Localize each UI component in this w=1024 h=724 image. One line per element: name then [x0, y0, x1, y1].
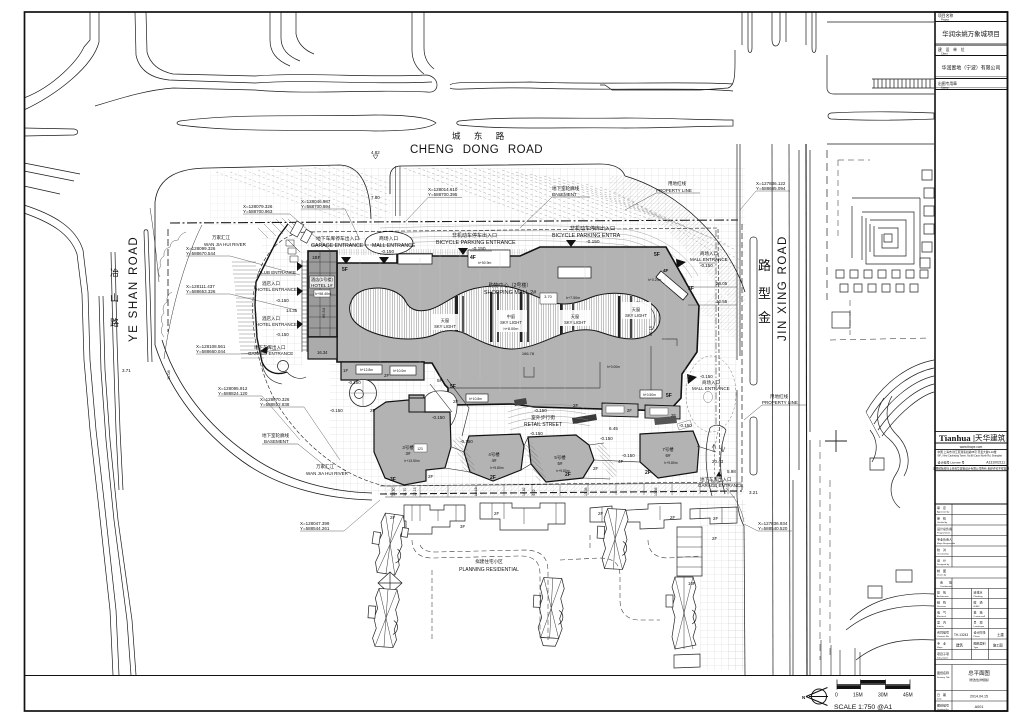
svg-text:2F: 2F — [565, 472, 571, 478]
svg-text:Landscape: Landscape — [974, 626, 985, 628]
svg-text:Structure: Structure — [937, 605, 947, 608]
svg-text:1BF: 1BF — [312, 255, 321, 260]
svg-text:Type: Type — [974, 647, 980, 649]
svg-text:制 图: 制 图 — [937, 568, 946, 573]
svg-text:20.43: 20.43 — [712, 459, 724, 464]
svg-text:Drawn by: Drawn by — [937, 574, 947, 577]
svg-text:地下室轮廓线: 地下室轮廓线 — [552, 185, 579, 192]
svg-text:-0.150: -0.150 — [530, 431, 543, 436]
svg-text:BICYCLE PARKING ENTRA: BICYCLE PARKING ENTRA — [552, 233, 621, 239]
svg-text:Y=588812.838: Y=588812.838 — [260, 402, 290, 407]
svg-text:建 设 单 位: 建 设 单 位 — [938, 47, 965, 52]
svg-text:3.71: 3.71 — [122, 368, 131, 373]
svg-text:-0.150: -0.150 — [586, 239, 600, 245]
svg-text:45M: 45M — [903, 693, 913, 699]
svg-text:13.13: 13.13 — [474, 487, 478, 496]
svg-text:Y=588660.044: Y=588660.044 — [196, 349, 226, 354]
svg-text:Y=588685.094: Y=588685.094 — [756, 186, 786, 191]
svg-text:-0.150: -0.150 — [534, 408, 547, 413]
svg-text:3F: 3F — [460, 524, 465, 529]
svg-text:4.82: 4.82 — [371, 150, 380, 155]
svg-text:项目子项: 项目子项 — [937, 651, 949, 656]
svg-text:3号楼: 3号楼 — [402, 444, 414, 451]
svg-text:总平面图: 总平面图 — [968, 669, 990, 677]
svg-text:-0.150: -0.150 — [700, 374, 713, 379]
svg-text:SHOPPING MALL 2#: SHOPPING MALL 2# — [484, 290, 537, 296]
svg-text:MALL ENTRANCE: MALL ENTRANCE — [690, 257, 728, 262]
svg-text:给排水: 给排水 — [974, 590, 983, 595]
svg-text:Y=588700.963: Y=588700.963 — [243, 209, 273, 214]
svg-text:www.thape.com: www.thape.com — [960, 445, 983, 449]
svg-text:建筑: 建筑 — [956, 643, 963, 648]
svg-text:TH-13243: TH-13243 — [954, 633, 968, 637]
svg-text:2F: 2F — [390, 515, 395, 520]
svg-text:1F: 1F — [343, 368, 348, 373]
svg-text:拟建住宅小区: 拟建住宅小区 — [475, 558, 503, 565]
svg-text:123: 123 — [417, 447, 423, 451]
svg-text:设 计: 设 计 — [937, 558, 946, 563]
svg-text:结 构: 结 构 — [937, 600, 946, 605]
svg-text:h+10.0m: h+10.0m — [393, 369, 406, 373]
svg-text:15M: 15M — [853, 693, 863, 699]
svg-text:Coordination: Coordination — [940, 585, 953, 588]
svg-text:商场入口: 商场入口 — [702, 379, 720, 386]
svg-text:N: N — [802, 695, 805, 700]
svg-text:5F: 5F — [666, 393, 672, 399]
svg-text:0: 0 — [835, 693, 838, 699]
svg-text:5F: 5F — [342, 267, 348, 273]
svg-text:Electrical: Electrical — [937, 615, 946, 618]
svg-text:审 定: 审 定 — [937, 505, 946, 510]
svg-text:土建: 土建 — [997, 632, 1004, 637]
svg-text:11.70: 11.70 — [403, 488, 407, 496]
svg-text:2F: 2F — [593, 466, 599, 471]
svg-text:天窗: 天窗 — [441, 317, 449, 324]
svg-text:h+8.00m: h+8.00m — [504, 327, 519, 331]
svg-text:Approved by: Approved by — [937, 511, 950, 514]
svg-text:SKY LIGHT: SKY LIGHT — [500, 320, 522, 325]
svg-text:地下车库出入口: 地下车库出入口 — [700, 476, 732, 483]
svg-text:-0.150: -0.150 — [700, 263, 713, 268]
svg-text:2F: 2F — [384, 373, 389, 378]
svg-text:Project: Project — [941, 18, 949, 22]
svg-text:4F: 4F — [663, 268, 669, 273]
svg-text:Contract No.: Contract No. — [937, 635, 950, 638]
svg-text:Y=588653.326: Y=588653.326 — [186, 289, 216, 294]
svg-text:h+10.8m: h+10.8m — [469, 397, 482, 401]
svg-text:JIN XING ROAD: JIN XING ROAD — [777, 235, 789, 341]
svg-text:15.90: 15.90 — [392, 487, 396, 496]
svg-text:天窗: 天窗 — [632, 306, 640, 313]
svg-text:Designed by: Designed by — [937, 564, 950, 566]
svg-text:h+12.8m: h+12.8m — [360, 368, 373, 372]
svg-text:-0.150: -0.150 — [276, 332, 289, 337]
svg-text:GARAGE ENTRANCE: GARAGE ENTRANCE — [248, 351, 293, 356]
svg-text:h+0.29m: h+0.29m — [648, 278, 661, 282]
svg-text:Tianhua: Tianhua — [939, 433, 971, 443]
svg-text:Architecture: Architecture — [937, 595, 949, 598]
svg-text:金: 金 — [758, 310, 771, 325]
svg-text:Drawing Title: Drawing Title — [937, 676, 950, 679]
svg-text:酒店入口: 酒店入口 — [262, 315, 280, 322]
svg-text:设计编号 License 号: 设计编号 License 号 — [938, 460, 965, 465]
svg-text:12.55: 12.55 — [716, 299, 728, 304]
svg-text:h+0.00m: h+0.00m — [607, 365, 620, 369]
svg-text:地下室轮廓线: 地下室轮廓线 — [262, 432, 289, 439]
svg-text:BASEMENT: BASEMENT — [264, 439, 289, 444]
svg-text:暖 通: 暖 通 — [974, 600, 983, 605]
svg-text:Date: Date — [937, 697, 942, 700]
svg-text:室 内: 室 内 — [937, 620, 946, 625]
svg-text:Stamp: Stamp — [941, 86, 949, 90]
svg-text:Y=588700.395: Y=588700.395 — [428, 192, 458, 197]
svg-text:10.82: 10.82 — [522, 487, 526, 496]
svg-text:h+13.50m: h+13.50m — [404, 459, 419, 463]
svg-text:166.78: 166.78 — [522, 351, 535, 356]
svg-text:7.80: 7.80 — [371, 195, 380, 200]
svg-text:-0.150: -0.150 — [432, 415, 445, 420]
svg-text:4F: 4F — [470, 255, 476, 261]
svg-text:2F: 2F — [573, 403, 579, 408]
svg-text:幕 墙: 幕 墙 — [974, 610, 983, 615]
svg-text:5F: 5F — [450, 384, 456, 390]
svg-text:室外步行街: 室外步行街 — [531, 414, 555, 421]
svg-text:（修改性详规版）: （修改性详规版） — [967, 677, 991, 682]
svg-text:建 筑: 建 筑 — [937, 590, 946, 595]
svg-text:10F: 10F — [688, 581, 696, 586]
svg-text:非机动车停车出入口: 非机动车停车出入口 — [452, 232, 497, 239]
svg-text:2F: 2F — [671, 413, 676, 418]
svg-text:华润置地（宁波）有限公司: 华润置地（宁波）有限公司 — [942, 65, 1001, 72]
svg-text:2F: 2F — [670, 515, 675, 520]
svg-text:5.98: 5.98 — [727, 469, 736, 474]
svg-text:型: 型 — [758, 286, 771, 301]
svg-text:设计总负责: 设计总负责 — [937, 526, 952, 531]
svg-text:PROPERTY LINE: PROPERTY LINE — [762, 400, 798, 405]
svg-text:SKY LIGHT: SKY LIGHT — [434, 324, 456, 329]
svg-text:HOTEL 1#: HOTEL 1# — [311, 283, 333, 288]
svg-text:6#: 6# — [666, 453, 671, 458]
svg-text:Y=588540.520: Y=588540.520 — [758, 526, 788, 531]
svg-text:本图纸版权归上海天华建筑设计有限公司所有 未经许可不得复制: 本图纸版权归上海天华建筑设计有限公司所有 未经许可不得复制 — [933, 466, 1009, 470]
svg-text:85.15: 85.15 — [648, 325, 653, 336]
svg-text:2F: 2F — [645, 470, 651, 476]
svg-text:h+0.50m: h+0.50m — [643, 393, 656, 397]
svg-text:用地红线: 用地红线 — [668, 180, 686, 187]
svg-text:PLANNING RESIDENTIAL: PLANNING RESIDENTIAL — [459, 567, 519, 573]
svg-text:Y=588544.261: Y=588544.261 — [300, 526, 330, 531]
svg-text:30M: 30M — [878, 693, 888, 699]
svg-text:2F: 2F — [490, 475, 496, 481]
svg-text:h+7.50m: h+7.50m — [566, 296, 580, 300]
svg-text:WAN JIA HUI RIVER: WAN JIA HUI RIVER — [306, 471, 349, 476]
svg-text:2014.04.15: 2014.04.15 — [970, 695, 988, 699]
svg-text:3.21: 3.21 — [749, 490, 758, 495]
svg-text:2F: 2F — [428, 474, 434, 479]
svg-text:用地红线: 用地红线 — [770, 393, 788, 400]
svg-text:地下车库出入口: 地下车库出入口 — [254, 344, 286, 351]
svg-text:路: 路 — [758, 258, 771, 273]
svg-text:Curtain wall: Curtain wall — [974, 615, 986, 618]
svg-text:GARAGE ENTRANCE: GARAGE ENTRANCE — [698, 483, 743, 488]
svg-text:中庭: 中庭 — [507, 313, 516, 320]
svg-text:中国 上海市 徐汇区漕溪北路88号 圣爱大厦9-10楼: 中国 上海市 徐汇区漕溪北路88号 圣爱大厦9-10楼 — [938, 450, 997, 454]
svg-text:酒店入口: 酒店入口 — [262, 280, 280, 287]
svg-text:图纸类别: 图纸类别 — [974, 641, 986, 646]
svg-text:华润余姚万象城项目: 华润余姚万象城项目 — [942, 29, 1000, 38]
svg-text:会 签: 会 签 — [940, 580, 952, 585]
svg-text:2F: 2F — [598, 511, 603, 516]
svg-text:Sub-project: Sub-project — [937, 656, 949, 659]
svg-text:GARAGE ENTRANCE: GARAGE ENTRANCE — [311, 243, 364, 249]
svg-text:6.45: 6.45 — [609, 426, 618, 431]
svg-text:Plumbing: Plumbing — [974, 596, 984, 598]
svg-text:5F: 5F — [437, 378, 443, 383]
svg-text:电 气: 电 气 — [937, 610, 946, 615]
svg-text:5#: 5# — [558, 461, 563, 466]
svg-text:2F: 2F — [627, 408, 632, 413]
svg-text:非机动车停库出入口: 非机动车停库出入口 — [570, 225, 615, 232]
svg-text:h+50.9m: h+50.9m — [478, 261, 491, 265]
svg-text:Y=588700.994: Y=588700.994 — [301, 204, 331, 209]
svg-text:天窗: 天窗 — [571, 313, 579, 320]
svg-text:路: 路 — [110, 317, 119, 328]
svg-text:专业负责人: 专业负责人 — [937, 537, 952, 542]
svg-text:12.13: 12.13 — [413, 487, 417, 496]
svg-text:YE SHAN ROAD: YE SHAN ROAD — [128, 236, 140, 342]
svg-text:审 核: 审 核 — [937, 516, 946, 521]
svg-text:h+98.40m: h+98.40m — [315, 292, 331, 296]
svg-text:h+9.80m: h+9.80m — [490, 466, 503, 470]
svg-text:专 业: 专 业 — [937, 641, 946, 646]
svg-text:3.70: 3.70 — [544, 295, 551, 299]
svg-text:2F: 2F — [370, 408, 376, 413]
svg-text:A131002111: A131002111 — [986, 461, 1005, 465]
svg-text:Phase: Phase — [974, 636, 981, 638]
svg-text:-0.150: -0.150 — [622, 453, 635, 458]
svg-text:4#: 4# — [492, 458, 497, 463]
svg-text:景 观: 景 观 — [974, 620, 983, 625]
svg-text:-0.150: -0.150 — [381, 249, 394, 254]
svg-text:Y=588824.120: Y=588824.120 — [218, 391, 248, 396]
svg-text:Major Responsible: Major Responsible — [937, 542, 956, 545]
svg-text:h+9.80m: h+9.80m — [664, 461, 677, 465]
svg-text:-0.150: -0.150 — [276, 298, 289, 303]
svg-text:11.08: 11.08 — [166, 370, 171, 380]
svg-text:SKY LIGHT: SKY LIGHT — [564, 320, 586, 325]
svg-text:商场入口: 商场入口 — [700, 250, 718, 257]
svg-text:Checked by: Checked by — [937, 554, 949, 556]
svg-text:日 期: 日 期 — [937, 692, 946, 697]
svg-text:-0.150: -0.150 — [600, 436, 613, 441]
svg-text:-0.150: -0.150 — [679, 423, 692, 428]
svg-text:15.36: 15.36 — [584, 487, 588, 496]
svg-text:3#: 3# — [406, 451, 411, 456]
svg-text:HVAC: HVAC — [974, 605, 980, 608]
svg-text:酒店(1号楼): 酒店(1号楼) — [311, 276, 333, 283]
svg-text:BASEMENT: BASEMENT — [552, 192, 577, 197]
svg-text:Y=588670.544: Y=588670.544 — [186, 251, 216, 256]
svg-text:万家汇江: 万家汇江 — [316, 463, 334, 470]
svg-text:2F: 2F — [494, 511, 499, 516]
svg-text:Major: Major — [937, 646, 943, 649]
svg-text:2F: 2F — [453, 399, 459, 404]
svg-text:4号楼: 4号楼 — [488, 451, 500, 458]
svg-text:|天华建筑: |天华建筑 — [973, 433, 1006, 443]
svg-text:5F: 5F — [654, 252, 660, 258]
svg-text:BICYCLE PARKING ENTRANCE: BICYCLE PARKING ENTRANCE — [436, 240, 516, 246]
svg-text:3F: 3F — [390, 477, 396, 483]
svg-text:9/F., New Caohejing Tower, No.: 9/F., New Caohejing Tower, No.88 Caoxi N… — [938, 455, 1003, 458]
svg-text:PROPERTY LINE: PROPERTY LINE — [656, 188, 692, 193]
svg-text:地下车库停车出入口: 地下车库停车出入口 — [316, 235, 359, 242]
svg-text:-0.150: -0.150 — [460, 439, 473, 444]
svg-text:-0.150: -0.150 — [330, 408, 343, 413]
svg-text:冶: 冶 — [110, 267, 119, 278]
svg-text:13.36: 13.36 — [654, 487, 658, 496]
svg-text:购物中心（2号楼）: 购物中心（2号楼） — [489, 282, 532, 289]
svg-text:校 对: 校 对 — [937, 547, 946, 552]
svg-text:万家汇江: 万家汇江 — [212, 234, 230, 241]
svg-text:城 东 路: 城 东 路 — [452, 131, 510, 141]
svg-text:HOTEL ENTRANCE: HOTEL ENTRANCE — [256, 322, 297, 327]
svg-text:2F: 2F — [713, 516, 718, 521]
svg-text:Verified by: Verified by — [937, 521, 948, 524]
svg-text:29.05: 29.05 — [716, 281, 728, 286]
svg-text:图纸名称: 图纸名称 — [937, 670, 949, 675]
svg-text:2F: 2F — [712, 536, 717, 541]
svg-text:65.54: 65.54 — [321, 307, 326, 318]
svg-text:合同编号: 合同编号 — [937, 630, 949, 635]
svg-text:SKY LIGHT: SKY LIGHT — [625, 313, 647, 318]
svg-text:HOTEL ENTRANCE: HOTEL ENTRANCE — [256, 287, 297, 292]
svg-text:施工图: 施工图 — [993, 643, 1003, 648]
svg-text:设计阶段: 设计阶段 — [974, 630, 986, 635]
svg-text:4F: 4F — [618, 459, 624, 464]
svg-text:5号楼: 5号楼 — [554, 454, 566, 461]
svg-text:A001: A001 — [975, 705, 984, 709]
svg-text:RETAIL STREET: RETAIL STREET — [524, 422, 562, 428]
svg-text:Programmed: Programmed — [937, 532, 950, 535]
svg-text:Interior: Interior — [937, 625, 944, 628]
svg-text:图纸编号: 图纸编号 — [937, 703, 949, 708]
svg-text:7号楼: 7号楼 — [662, 446, 674, 453]
svg-text:-0.150: -0.150 — [348, 380, 361, 385]
svg-text:16.34: 16.34 — [317, 350, 328, 355]
svg-text:CHENG DONG ROAD: CHENG DONG ROAD — [410, 144, 543, 156]
svg-text:SCALE 1:750 @A1: SCALE 1:750 @A1 — [834, 704, 893, 711]
svg-text:项目名称: 项目名称 — [938, 13, 953, 18]
svg-text:商场入口: 商场入口 — [379, 235, 398, 242]
svg-text:4.62: 4.62 — [532, 489, 536, 496]
svg-text:山: 山 — [110, 293, 119, 303]
svg-text:MALL ENTRANCE: MALL ENTRANCE — [692, 386, 730, 391]
svg-text:14.35: 14.35 — [286, 308, 298, 313]
svg-text:出图专用章: 出图专用章 — [938, 81, 957, 86]
svg-text:Client: Client — [941, 52, 948, 56]
